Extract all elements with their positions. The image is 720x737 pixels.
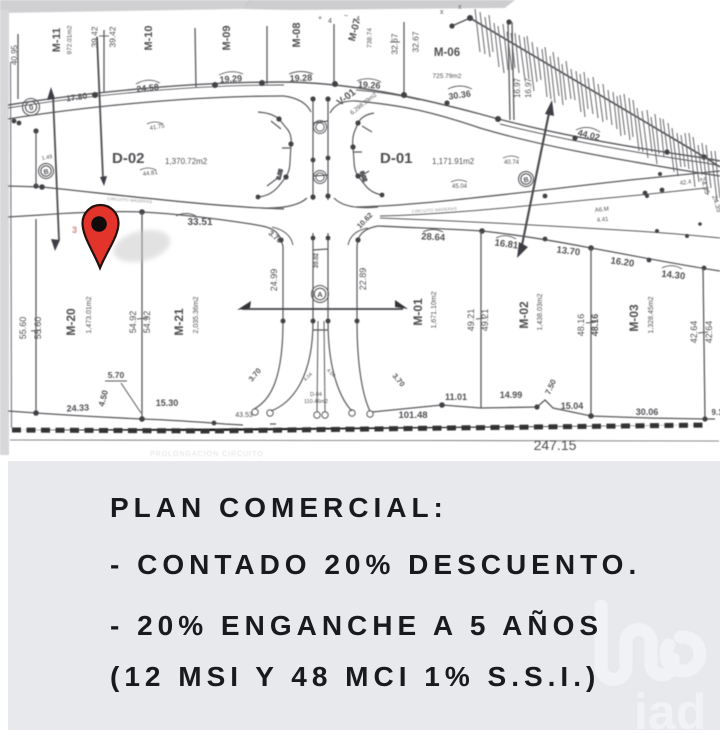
- svg-text:A6.M: A6.M: [595, 207, 610, 214]
- svg-text:1,171.91m2: 1,171.91m2: [432, 157, 475, 166]
- svg-text:40.95: 40.95: [10, 44, 19, 65]
- svg-text:+: +: [318, 15, 322, 22]
- svg-text:24.99: 24.99: [269, 269, 279, 292]
- svg-text:48.16: 48.16: [590, 314, 600, 337]
- svg-text:41.75: 41.75: [149, 123, 165, 132]
- svg-text:33.51: 33.51: [187, 217, 212, 228]
- svg-text:PROLONGACION CIRCUITO: PROLONGACION CIRCUITO: [150, 451, 264, 458]
- svg-text:x: x: [458, 4, 462, 11]
- svg-text:1,473.01m2: 1,473.01m2: [86, 296, 93, 333]
- svg-text:972.01m2: 972.01m2: [67, 25, 74, 54]
- svg-text:~: ~: [344, 13, 348, 20]
- svg-text:16.20: 16.20: [610, 255, 635, 269]
- svg-text:101.48: 101.48: [398, 410, 427, 421]
- svg-text:32.67: 32.67: [389, 33, 399, 55]
- svg-text:28.64: 28.64: [421, 231, 446, 243]
- svg-text:D-01: D-01: [380, 150, 413, 167]
- svg-text:3.70: 3.70: [390, 372, 406, 389]
- svg-text:48.16: 48.16: [576, 314, 586, 337]
- svg-text:15.04: 15.04: [561, 401, 584, 411]
- svg-text:M-06: M-06: [434, 47, 460, 59]
- svg-text:M-11: M-11: [51, 28, 63, 52]
- svg-text:5.70: 5.70: [108, 370, 125, 380]
- svg-text:1,370.72m2: 1,370.72m2: [165, 157, 208, 166]
- svg-text:725.79m2: 725.79m2: [433, 73, 462, 80]
- svg-text:4.50: 4.50: [96, 389, 110, 408]
- svg-text:32.67: 32.67: [410, 31, 420, 53]
- svg-text:B: B: [523, 177, 529, 185]
- svg-text:iad: iad: [634, 684, 706, 737]
- svg-text:110.46m2: 110.46m2: [304, 399, 328, 405]
- svg-text:V-01: V-01: [335, 87, 358, 109]
- svg-text:24.33: 24.33: [66, 402, 89, 413]
- svg-text:D-04: D-04: [310, 392, 322, 398]
- svg-text:22.89: 22.89: [358, 268, 368, 291]
- svg-text:20.02: 20.02: [314, 252, 320, 268]
- svg-text:A: A: [317, 290, 323, 299]
- svg-text:D-02: D-02: [112, 150, 145, 167]
- svg-text:7.50: 7.50: [543, 377, 558, 395]
- svg-text:16.81: 16.81: [494, 237, 520, 251]
- svg-text:x: x: [440, 9, 444, 16]
- svg-text:3.70: 3.70: [247, 366, 263, 383]
- svg-text:30.36: 30.36: [448, 89, 472, 102]
- svg-text:M-09: M-09: [221, 25, 233, 50]
- svg-text:42.64: 42.64: [689, 321, 699, 344]
- svg-text:738.74: 738.74: [367, 28, 374, 48]
- svg-text:42.64: 42.64: [704, 321, 714, 344]
- svg-text:1,438.03m2: 1,438.03m2: [537, 293, 544, 330]
- svg-text:3: 3: [72, 225, 77, 235]
- svg-text:M-20: M-20: [64, 308, 78, 336]
- svg-text:45.04: 45.04: [452, 184, 468, 190]
- svg-text:CIRCUITO MADERAS: CIRCUITO MADERAS: [107, 196, 152, 204]
- svg-text:M-10: M-10: [143, 25, 155, 50]
- svg-text:40.74: 40.74: [504, 160, 520, 166]
- svg-text:42.4: 42.4: [679, 179, 692, 187]
- svg-text:16.97: 16.97: [524, 77, 533, 98]
- svg-text:39.42: 39.42: [107, 26, 117, 48]
- svg-text:1,671.10m2: 1,671.10m2: [431, 291, 438, 328]
- svg-text:49.21: 49.21: [466, 309, 476, 332]
- svg-text:55.60: 55.60: [18, 317, 28, 340]
- svg-text:M-01: M-01: [411, 298, 425, 326]
- svg-text:49.21: 49.21: [480, 309, 490, 332]
- svg-text:30.06: 30.06: [636, 407, 659, 417]
- svg-text:247.15: 247.15: [534, 437, 577, 453]
- svg-text:13.70: 13.70: [556, 245, 581, 259]
- svg-text:4: 4: [356, 16, 360, 23]
- svg-text:14.30: 14.30: [661, 269, 686, 282]
- svg-text:54.92: 54.92: [128, 311, 138, 334]
- svg-text:M-02: M-02: [517, 301, 531, 329]
- svg-text:16.97: 16.97: [513, 77, 522, 98]
- svg-text:1,328.45m2: 1,328.45m2: [648, 296, 655, 333]
- svg-text:24.35: 24.35: [710, 194, 720, 213]
- svg-text:M-21: M-21: [172, 308, 186, 336]
- svg-text:4.41: 4.41: [597, 217, 610, 224]
- svg-text:1.49: 1.49: [41, 154, 53, 162]
- svg-text:2,035.36m2: 2,035.36m2: [193, 296, 200, 333]
- svg-text:11.01: 11.01: [445, 392, 467, 402]
- svg-text:M-08: M-08: [291, 22, 303, 47]
- svg-text:B: B: [43, 169, 49, 177]
- svg-text:14.99: 14.99: [500, 390, 523, 400]
- svg-text:8.05: 8.05: [276, 169, 285, 181]
- svg-text:15.30: 15.30: [156, 398, 179, 408]
- svg-text:M-03: M-03: [627, 304, 641, 332]
- svg-text:9.1: 9.1: [711, 408, 720, 417]
- svg-text:44.81: 44.81: [142, 170, 158, 178]
- svg-text:43.53: 43.53: [235, 412, 253, 419]
- svg-text:55.60: 55.60: [33, 317, 43, 340]
- svg-text:4: 4: [328, 18, 332, 25]
- svg-text:24.35: 24.35: [698, 176, 710, 195]
- svg-text:54.92: 54.92: [142, 311, 152, 334]
